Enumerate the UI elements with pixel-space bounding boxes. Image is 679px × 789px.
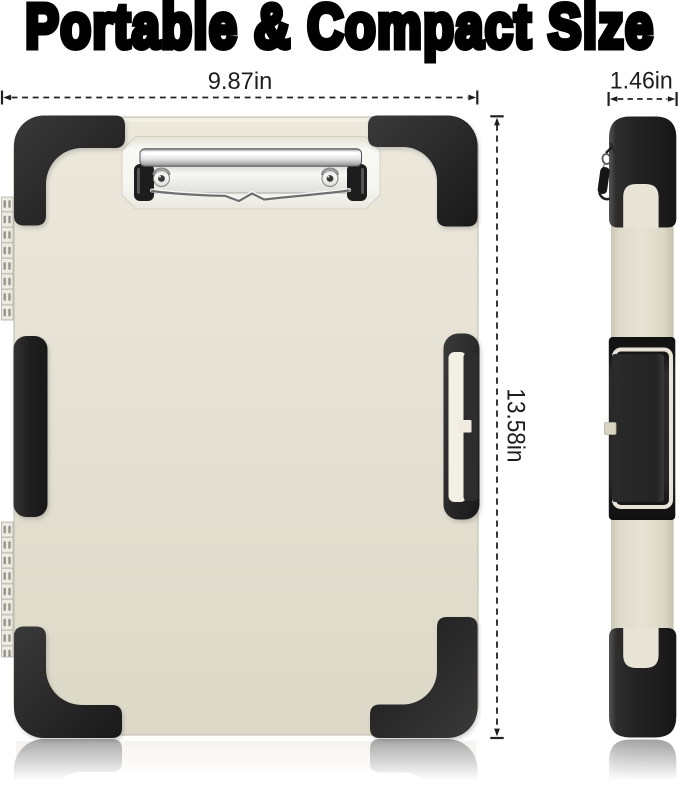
svg-text:1.46in: 1.46in [610,68,673,95]
svg-text:Portable & Compact Size: Portable & Compact Size [25,0,654,61]
svg-text:9.87in: 9.87in [208,68,273,95]
svg-text:13.58in: 13.58in [502,388,530,462]
